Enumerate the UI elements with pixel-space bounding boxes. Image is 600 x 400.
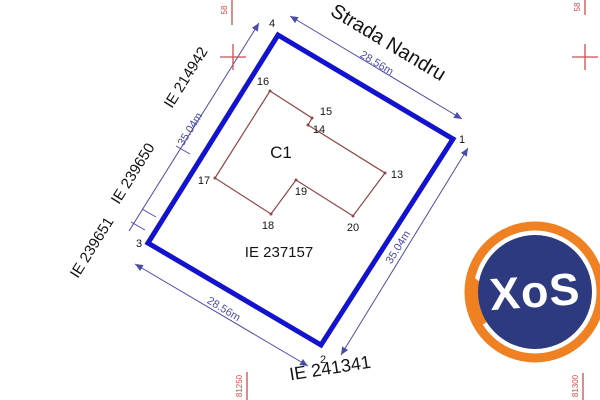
vertex-16: 16 <box>257 76 269 88</box>
grid-label-top-left: 58 <box>220 5 229 14</box>
vertex-2: 2 <box>320 354 326 366</box>
vertex-19: 19 <box>295 186 307 198</box>
plan-canvas: XoS 28.56m 35.04m 28.56m 35.04m Strada N… <box>0 0 600 400</box>
neighbor-id-lower-left: IE 239651 <box>67 214 118 281</box>
grid-cross-left <box>220 44 246 70</box>
neighbor-id-middle-left: IE 239650 <box>108 140 159 207</box>
building-vertex-labels: 16 15 14 13 20 19 18 17 <box>198 76 403 234</box>
cadastral-plan: XoS 28.56m 35.04m 28.56m 35.04m Strada N… <box>0 0 600 400</box>
road-parcel-id: IE 241341 <box>288 352 372 385</box>
grid-cross-right <box>572 44 598 70</box>
vertex-18: 18 <box>262 220 274 232</box>
dimension-line-right <box>341 148 468 355</box>
building-vertex-dots <box>214 90 387 218</box>
dimension-label-left: 35.04m <box>176 111 206 148</box>
grid-label-bottom-left: 81250 <box>235 374 244 397</box>
vertex-4: 4 <box>269 18 275 30</box>
grid-label-top-right: 58 <box>573 2 582 11</box>
vertex-15: 15 <box>320 106 332 118</box>
vertex-1: 1 <box>459 134 465 146</box>
watermark-logo: XoS <box>460 226 600 358</box>
vertex-13: 13 <box>391 169 403 181</box>
vertex-3: 3 <box>136 238 142 250</box>
building-outline <box>214 90 387 218</box>
watermark-text: XoS <box>488 263 582 320</box>
neighbor-id-upper-left: IE 214942 <box>161 44 212 111</box>
building-label: C1 <box>270 143 292 162</box>
grid-label-bottom-right: 81300 <box>571 374 580 397</box>
vertex-14: 14 <box>313 124 325 136</box>
parcel-id: IE 237157 <box>245 244 313 261</box>
vertex-20: 20 <box>347 222 359 234</box>
dimension-label-bottom: 28.56m <box>205 295 243 324</box>
vertex-17: 17 <box>198 175 210 187</box>
